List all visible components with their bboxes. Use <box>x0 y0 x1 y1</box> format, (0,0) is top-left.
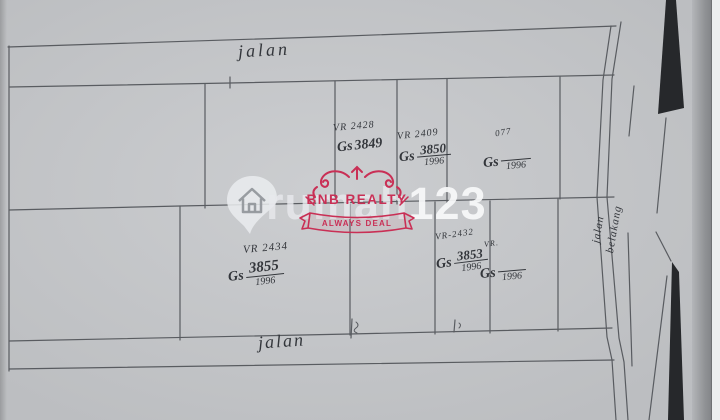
plot-gs-number: Gs38551996 <box>227 258 285 291</box>
gs-prefix: Gs <box>435 255 452 272</box>
gs-prefix: Gs <box>336 139 353 156</box>
margin-line <box>649 276 667 420</box>
survey-tick <box>454 320 455 332</box>
margin-line <box>656 232 671 261</box>
stamp-banner-text: ALWAYS DEAL <box>322 219 392 228</box>
top-road-inner-line <box>10 75 614 87</box>
gs-prefix: Gs <box>479 265 496 281</box>
survey-mark <box>354 322 358 333</box>
gs-value: 3849 <box>354 136 383 154</box>
gs-value: 3850 <box>416 141 451 157</box>
road-label-bottom: jalan <box>257 329 305 353</box>
gs-prefix: Gs <box>227 268 244 285</box>
margin-line <box>629 86 634 136</box>
margin-line <box>657 118 666 213</box>
dark-strip-shape <box>668 262 684 420</box>
survey-tick <box>351 319 352 338</box>
bottom-road-outer-line <box>9 360 614 369</box>
plot-gs-number: Gs1996 <box>479 259 526 285</box>
agency-stamp: BNB REALTY ALWAYS DEAL <box>292 163 422 241</box>
gs-year: 1996 <box>497 269 526 283</box>
road-label-top: jalan <box>237 39 290 63</box>
gs-prefix: Gs <box>482 154 499 170</box>
margin-line <box>628 233 632 366</box>
bottom-road-inner-line <box>9 328 612 341</box>
scanned-site-plan: jalan jalan jalan belakang VR 2428 Gs384… <box>0 0 720 420</box>
plot-gs-number: Gs1996 <box>482 148 531 174</box>
gs-value: 3853 <box>452 246 487 263</box>
survey-mark <box>459 323 461 328</box>
north-arrow-icon <box>658 0 684 114</box>
top-road-outer-line <box>8 26 616 47</box>
stamp-title: BNB REALTY <box>307 192 408 207</box>
